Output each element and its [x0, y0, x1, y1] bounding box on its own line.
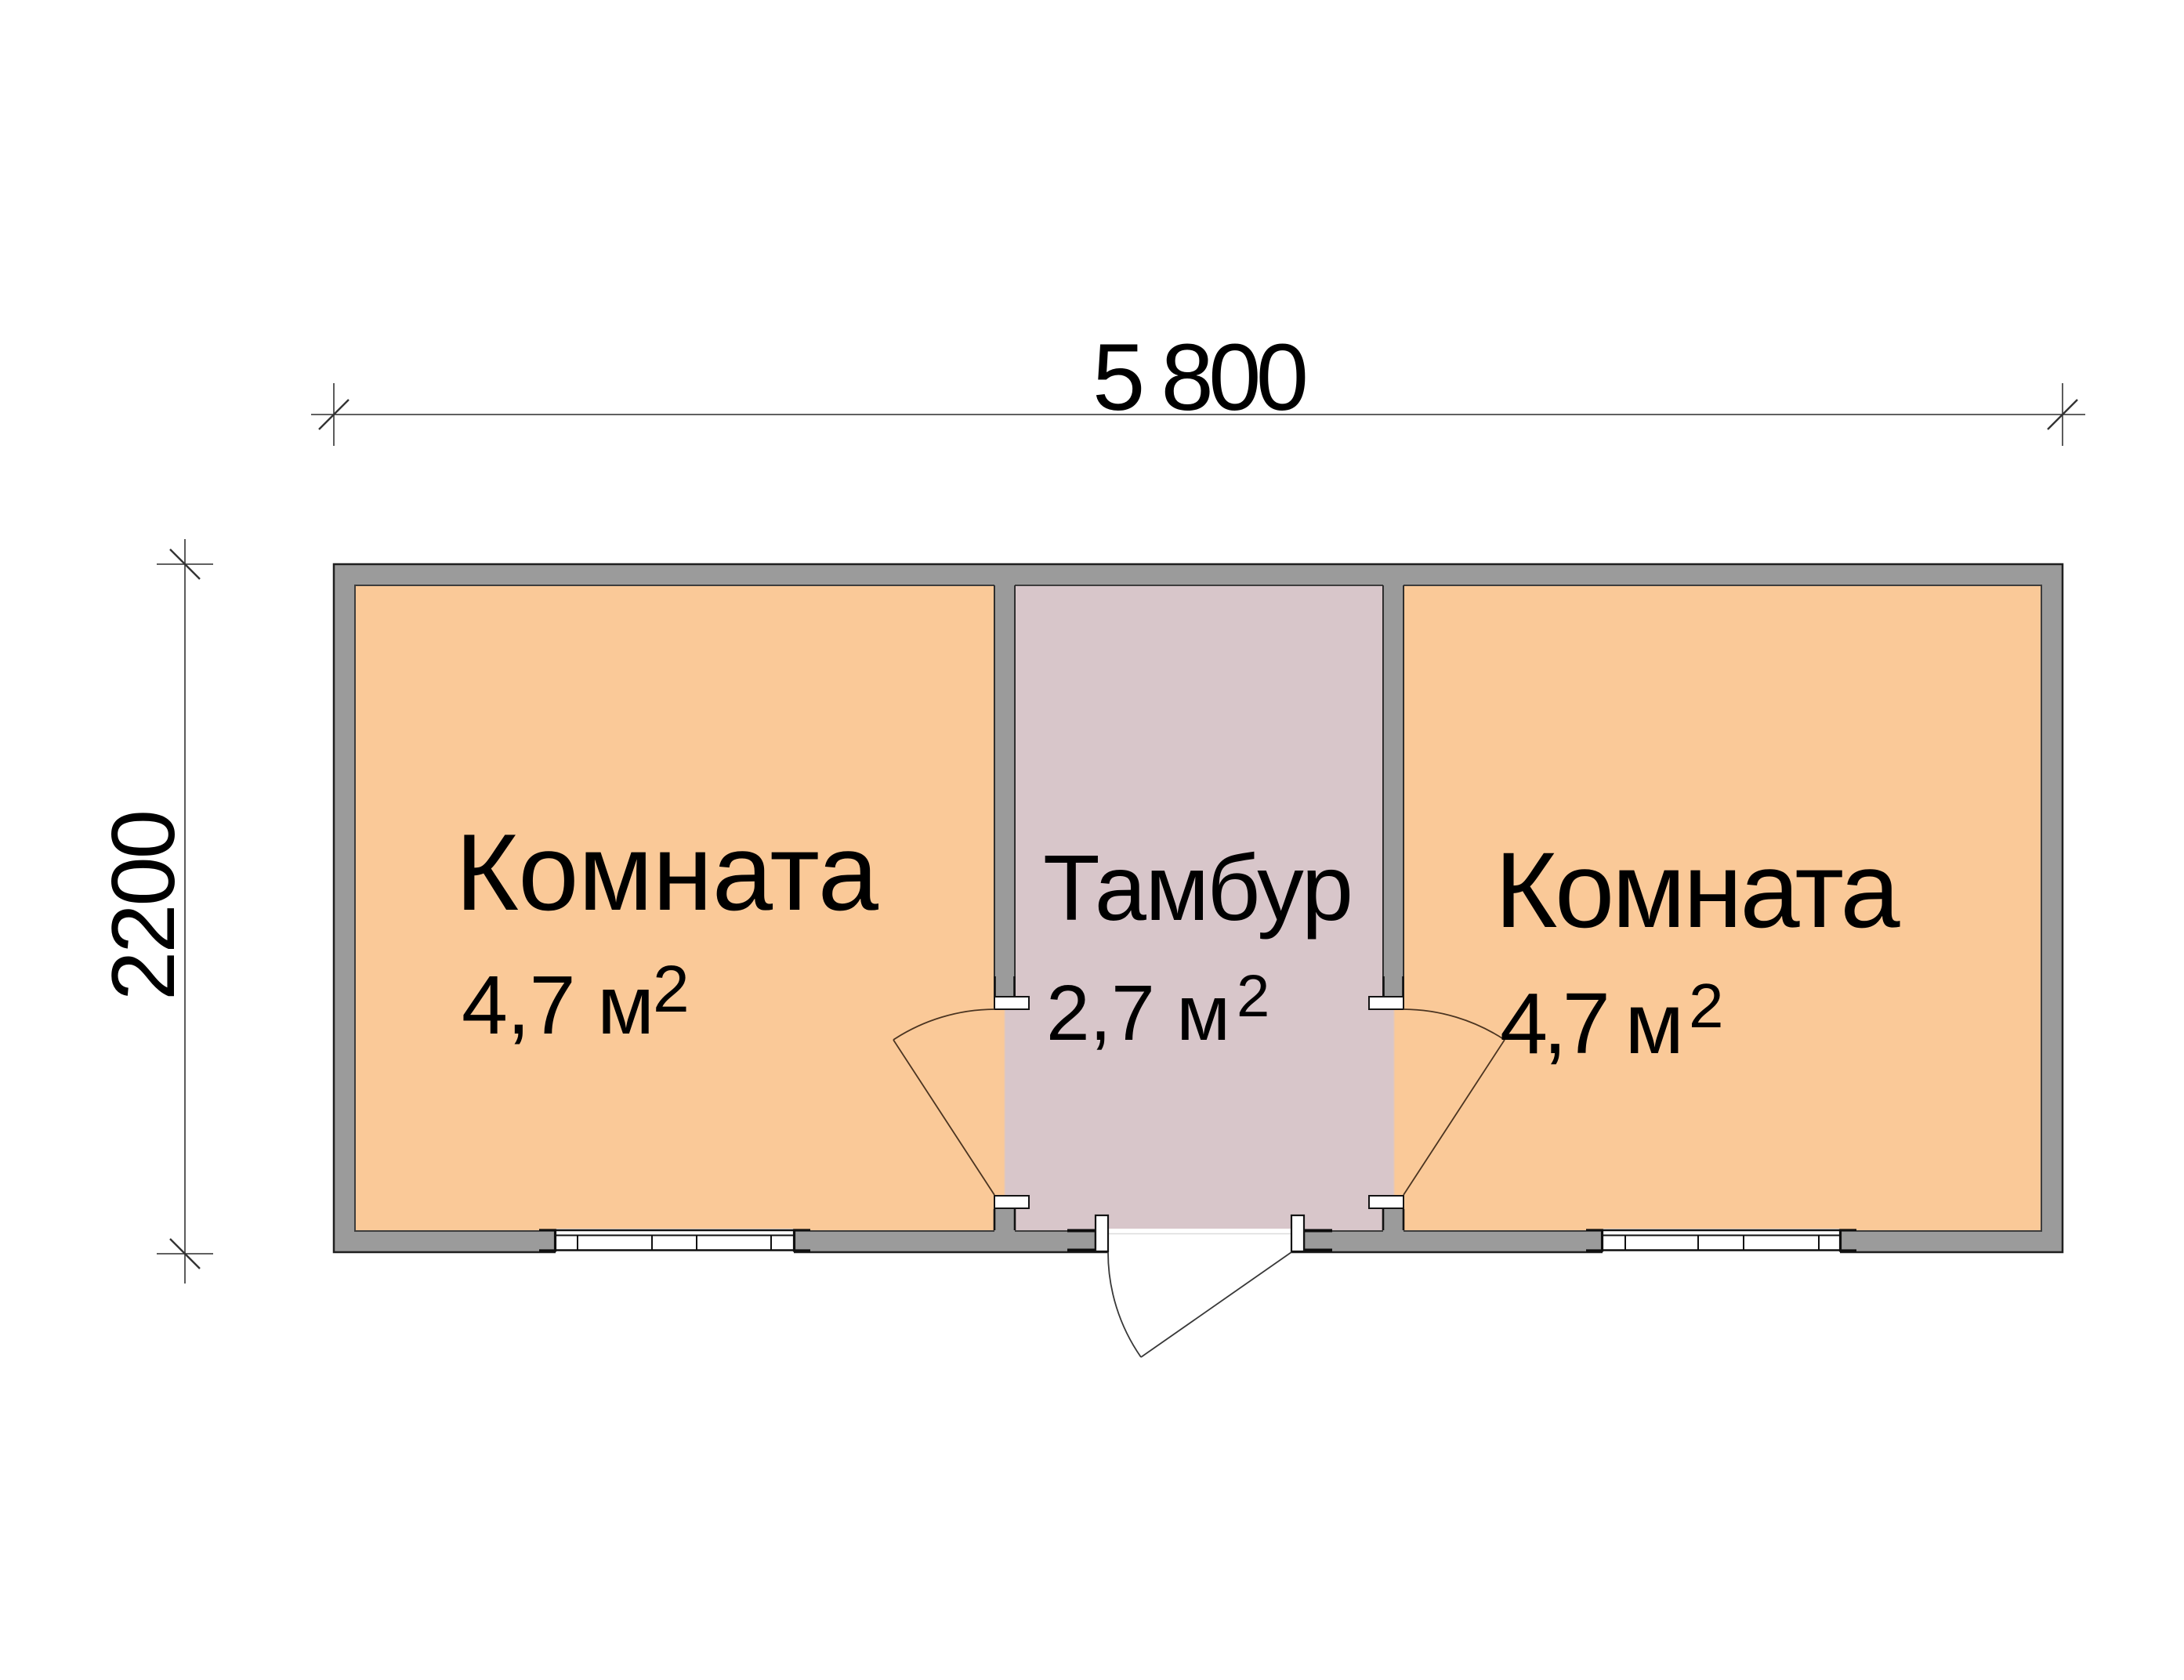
svg-text:2,7 м: 2,7 м	[1046, 969, 1230, 1057]
svg-text:2: 2	[653, 952, 690, 1026]
svg-text:4,7 м: 4,7 м	[462, 959, 654, 1052]
svg-text:5 800: 5 800	[1092, 324, 1309, 430]
svg-text:Тамбур: Тамбур	[1043, 836, 1353, 940]
svg-text:Комната: Комната	[455, 812, 879, 933]
svg-text:Комната: Комната	[1495, 831, 1901, 950]
svg-text:2: 2	[1689, 971, 1724, 1041]
svg-text:4,7 м: 4,7 м	[1500, 976, 1684, 1072]
svg-text:2: 2	[1237, 963, 1269, 1030]
svg-text:2200: 2200	[94, 809, 194, 1001]
